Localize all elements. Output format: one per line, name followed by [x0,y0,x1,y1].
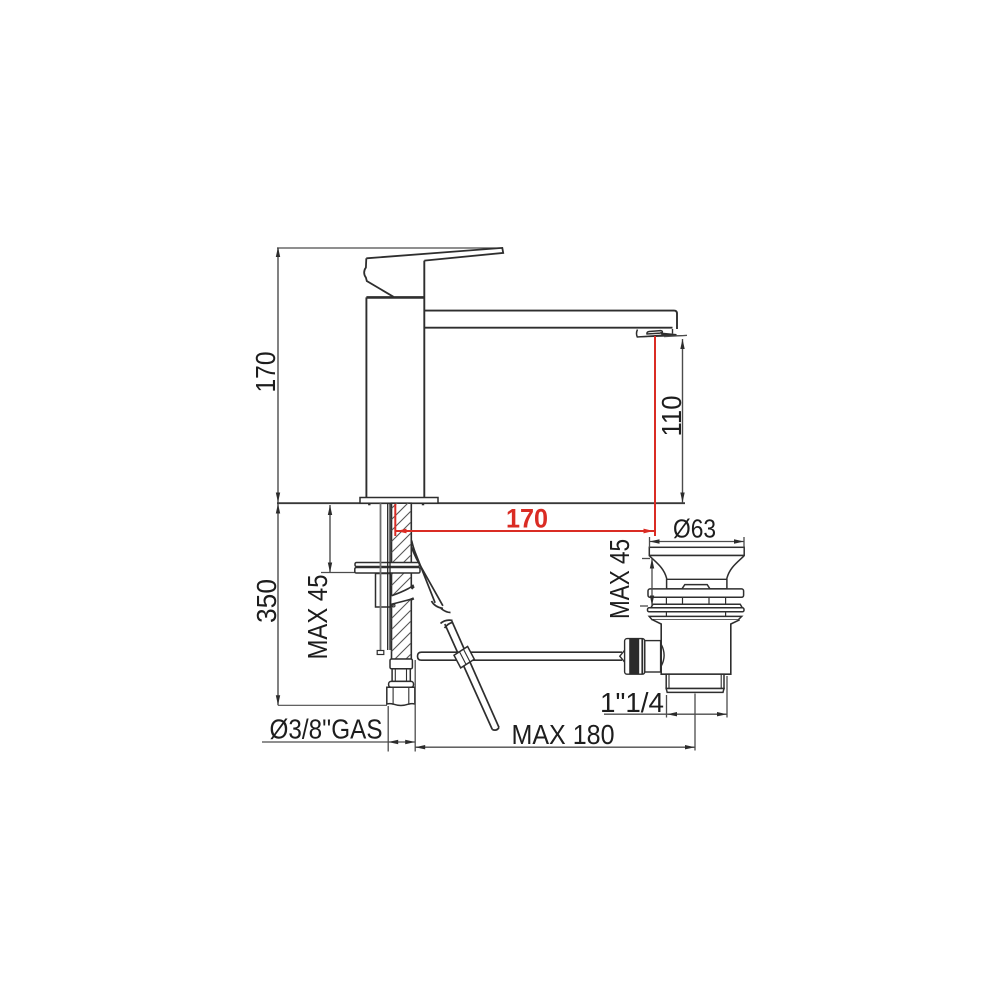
svg-text:MAX 45: MAX 45 [604,539,635,619]
svg-text:170: 170 [506,504,548,534]
svg-text:Ø63: Ø63 [673,514,716,544]
svg-text:MAX 45: MAX 45 [302,575,333,660]
svg-text:MAX 180: MAX 180 [512,719,615,750]
svg-text:Ø3/8''GAS: Ø3/8''GAS [270,714,383,745]
svg-text:1"1/4: 1"1/4 [600,687,664,718]
svg-text:350: 350 [251,579,282,623]
svg-text:170: 170 [250,352,281,393]
svg-text:110: 110 [656,396,687,437]
